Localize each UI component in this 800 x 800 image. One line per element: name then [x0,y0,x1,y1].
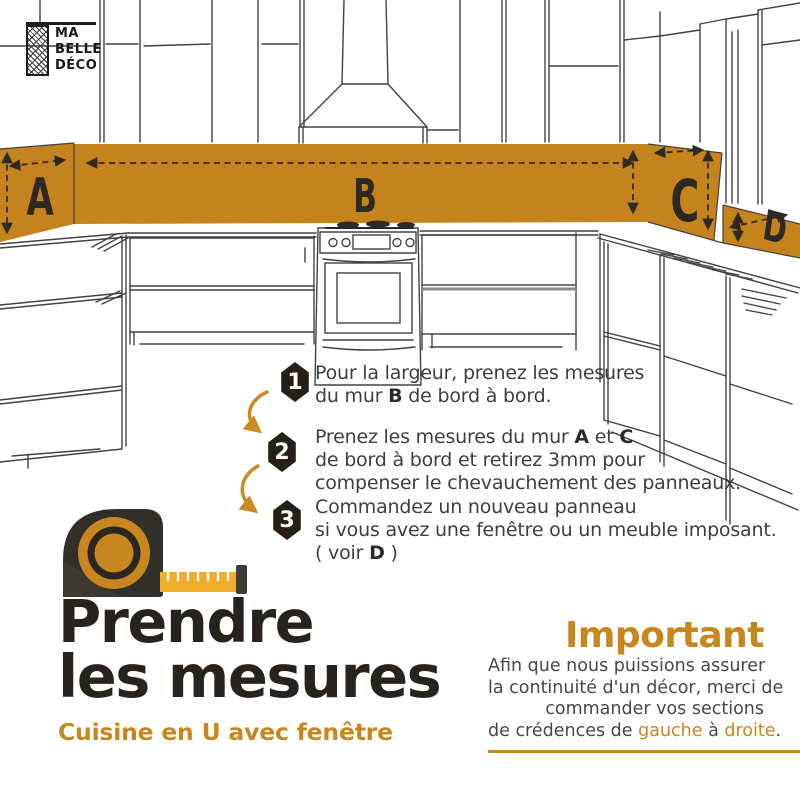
step-connector-arrows [242,392,267,510]
step-3-text: Commandez un nouveau panneau si vous ave… [315,496,776,565]
step-1-line-2: du mur B de bord à bord. [315,385,644,408]
important-divider-rule [488,750,800,753]
step-2-line-1: Prenez les mesures du mur A et C [315,426,741,449]
wall-label-b: B [351,173,378,219]
step-2-line-2: de bord à bord et retirez 3mm pour [315,449,741,472]
page-title-line-2: les mesures [58,649,440,704]
important-line-3: commander vos sections [488,699,800,721]
wall-label-a: A [26,172,53,224]
important-block: Important Afin que nous puissions assure… [488,616,800,753]
wall-label-c: C [670,172,697,230]
page-subtitle: Cuisine en U avec fenêtre [58,718,440,746]
highlight-droite: droite [724,721,775,741]
infographic-poster: MA BELLE DÉCO A B C D 1 2 3 Pour la larg… [0,0,800,800]
important-line-1: Afin que nous puissions assurer [488,656,800,678]
step-1-text: Pour la largeur, prenez les mesures du m… [315,362,644,408]
step-3-line-1: Commandez un nouveau panneau [315,496,776,519]
important-line-4: de crédences de gauche à droite. [488,721,800,743]
brand-line-3: DÉCO [55,58,102,74]
brand-line-1: MA [55,26,102,42]
brand-logo: MA BELLE DÉCO [55,26,102,74]
step-3-line-2: si vous avez une fenêtre ou un meuble im… [315,519,776,542]
step-2-line-3: compenser le chevauchement des panneaux. [315,472,741,495]
step-1-line-1: Pour la largeur, prenez les mesures [315,362,644,385]
page-title-line-1: Prendre [58,594,440,649]
step-2-text: Prenez les mesures du mur A et C de bord… [315,426,741,495]
important-line-2: la continuité d'un décor, merci de [488,678,800,700]
wall-label-d: D [759,203,792,252]
tape-measure-icon [63,509,247,597]
step-3-line-3: ( voir D ) [315,542,776,565]
important-heading: Important [488,616,800,656]
brand-line-2: BELLE [55,42,102,58]
highlight-gauche: gauche [638,721,702,741]
title-block: Prendre les mesures Cuisine en U avec fe… [58,594,440,746]
tape-tick-marks [168,572,228,581]
logo-pattern-swatch [26,25,49,76]
